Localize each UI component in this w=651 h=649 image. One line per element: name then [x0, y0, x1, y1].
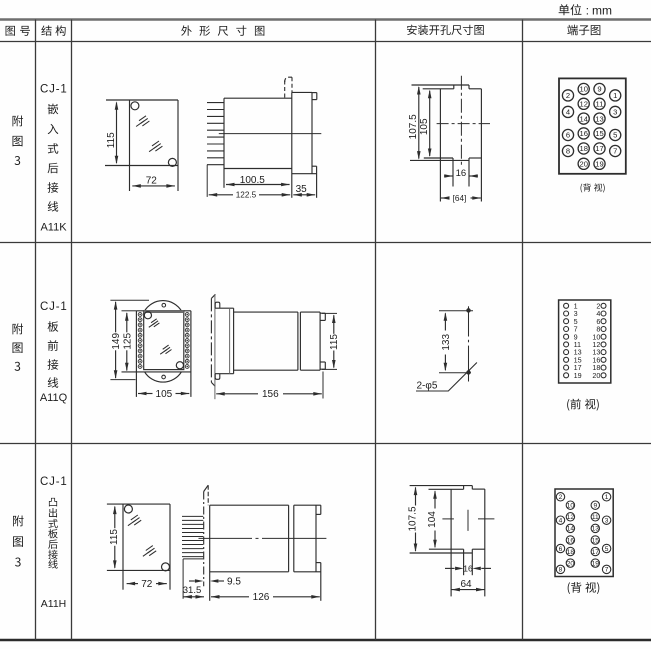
svg-text:6: 6	[559, 546, 563, 553]
svg-text:12: 12	[567, 514, 575, 521]
svg-text:18: 18	[579, 144, 587, 153]
svg-text:13: 13	[592, 526, 600, 533]
svg-text:10: 10	[579, 85, 587, 94]
svg-text:72: 72	[146, 176, 158, 187]
svg-text:A11Q: A11Q	[40, 392, 68, 404]
svg-text:4: 4	[559, 518, 563, 525]
svg-text:10: 10	[567, 503, 575, 510]
svg-text:9: 9	[597, 85, 601, 94]
svg-text:16: 16	[463, 563, 473, 573]
svg-text:2-φ5: 2-φ5	[417, 380, 438, 391]
svg-text:3: 3	[605, 518, 609, 525]
svg-text:133: 133	[441, 334, 452, 351]
svg-text:19: 19	[592, 560, 600, 567]
svg-text:35: 35	[296, 184, 308, 195]
svg-text:20: 20	[592, 371, 600, 380]
svg-text:156: 156	[262, 389, 279, 400]
svg-text:64: 64	[460, 579, 472, 590]
svg-text:19: 19	[574, 371, 582, 380]
svg-text:11: 11	[596, 100, 604, 109]
svg-text:17: 17	[592, 549, 600, 556]
svg-text::: :	[586, 5, 589, 17]
svg-text:17: 17	[595, 144, 603, 153]
svg-text:2: 2	[566, 91, 570, 100]
svg-text:15: 15	[592, 537, 600, 544]
svg-text:13: 13	[595, 114, 603, 123]
svg-text:126: 126	[253, 592, 270, 603]
svg-text:16: 16	[567, 537, 575, 544]
svg-text:20: 20	[579, 160, 587, 169]
svg-text:1: 1	[613, 91, 617, 100]
svg-text:16: 16	[579, 129, 587, 138]
svg-text:115: 115	[106, 132, 117, 148]
svg-text:31.5: 31.5	[183, 585, 202, 596]
svg-text:149: 149	[111, 333, 122, 350]
svg-text:105: 105	[419, 118, 430, 135]
svg-text:CJ-1: CJ-1	[40, 476, 67, 488]
svg-text:7: 7	[613, 147, 617, 156]
svg-text:4: 4	[566, 108, 570, 117]
svg-text:122.5: 122.5	[236, 190, 257, 199]
svg-text:A11K: A11K	[40, 222, 67, 234]
svg-text:2: 2	[559, 494, 563, 501]
svg-text:18: 18	[567, 549, 575, 556]
svg-text:9.5: 9.5	[227, 576, 241, 587]
svg-text:72: 72	[141, 579, 153, 590]
svg-text:115: 115	[329, 334, 340, 350]
svg-text:125: 125	[122, 333, 133, 350]
svg-text:14: 14	[567, 526, 575, 533]
svg-text:7: 7	[605, 567, 609, 574]
svg-text:8: 8	[566, 147, 570, 156]
svg-text:15: 15	[595, 129, 603, 138]
svg-text:12: 12	[579, 100, 587, 109]
svg-text:9: 9	[593, 503, 597, 510]
svg-text:20: 20	[567, 560, 575, 567]
svg-text:A11H: A11H	[41, 598, 67, 610]
svg-text:6: 6	[566, 131, 570, 140]
svg-text:3: 3	[613, 108, 617, 117]
svg-text:mm: mm	[592, 3, 612, 17]
svg-text:1: 1	[605, 494, 609, 501]
svg-text:100.5: 100.5	[240, 175, 265, 186]
svg-text:5: 5	[605, 546, 609, 553]
svg-text:5: 5	[613, 131, 617, 140]
svg-text:105: 105	[156, 389, 173, 400]
svg-text:16: 16	[456, 168, 467, 179]
svg-text:8: 8	[559, 567, 563, 574]
svg-text:[64]: [64]	[453, 194, 467, 203]
svg-text:CJ-1: CJ-1	[40, 301, 67, 313]
svg-text:11: 11	[592, 514, 599, 521]
svg-text:107.5: 107.5	[408, 114, 419, 139]
svg-text:107.5: 107.5	[408, 506, 419, 531]
svg-text:115: 115	[109, 529, 120, 545]
svg-text:14: 14	[579, 114, 587, 123]
svg-text:104: 104	[427, 511, 438, 528]
svg-text:19: 19	[595, 160, 603, 169]
svg-text:CJ-1: CJ-1	[40, 84, 67, 96]
